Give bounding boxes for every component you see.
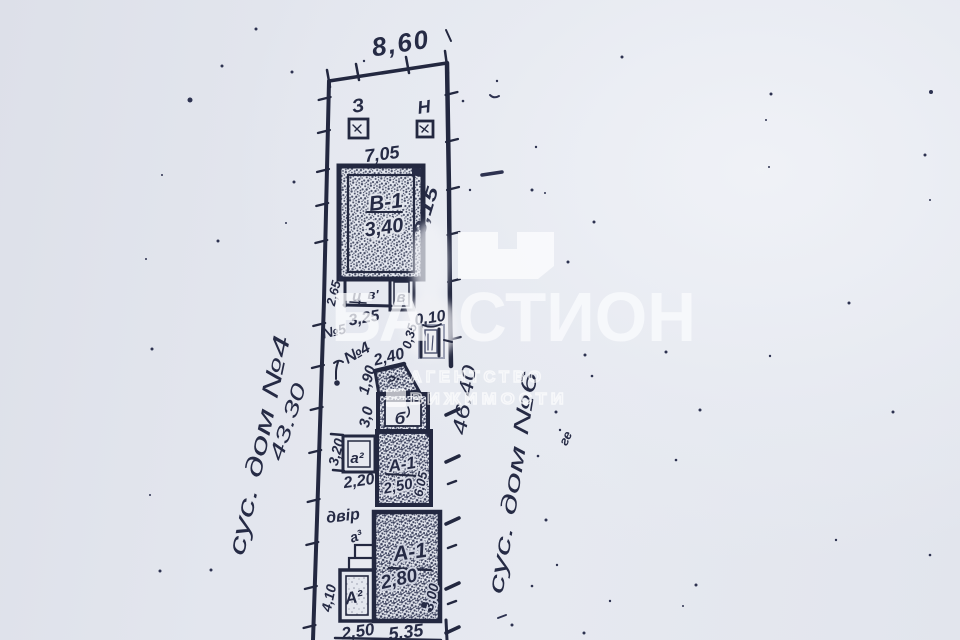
svg-text:2,20: 2,20 [341,471,375,492]
svg-text:СТИОН: СТИОН [458,278,696,356]
svg-text:1,90: 1,90 [355,363,379,396]
svg-text:б: б [395,409,406,428]
svg-text:БА: БА [331,278,429,356]
svg-text:5,35: 5,35 [387,620,425,640]
svg-text:а²: а² [350,450,364,467]
svg-text:А-1: А-1 [391,539,429,567]
svg-text:а³: а³ [347,526,364,545]
svg-text:4,10: 4,10 [318,583,340,614]
svg-text:АГЕНТСТВО: АГЕНТСТВО [410,369,545,386]
svg-text:3,0: 3,0 [356,404,377,429]
svg-text:ВИЖИМОСТИ: ВИЖИМОСТИ [410,391,568,408]
svg-text:7,05: 7,05 [363,142,401,166]
svg-text:Н: Н [416,96,433,118]
svg-text:З: З [350,95,366,118]
svg-text:8,60: 8,60 [370,24,433,63]
svg-text:ге: ге [556,429,575,448]
svg-text:двір: двір [325,506,361,527]
